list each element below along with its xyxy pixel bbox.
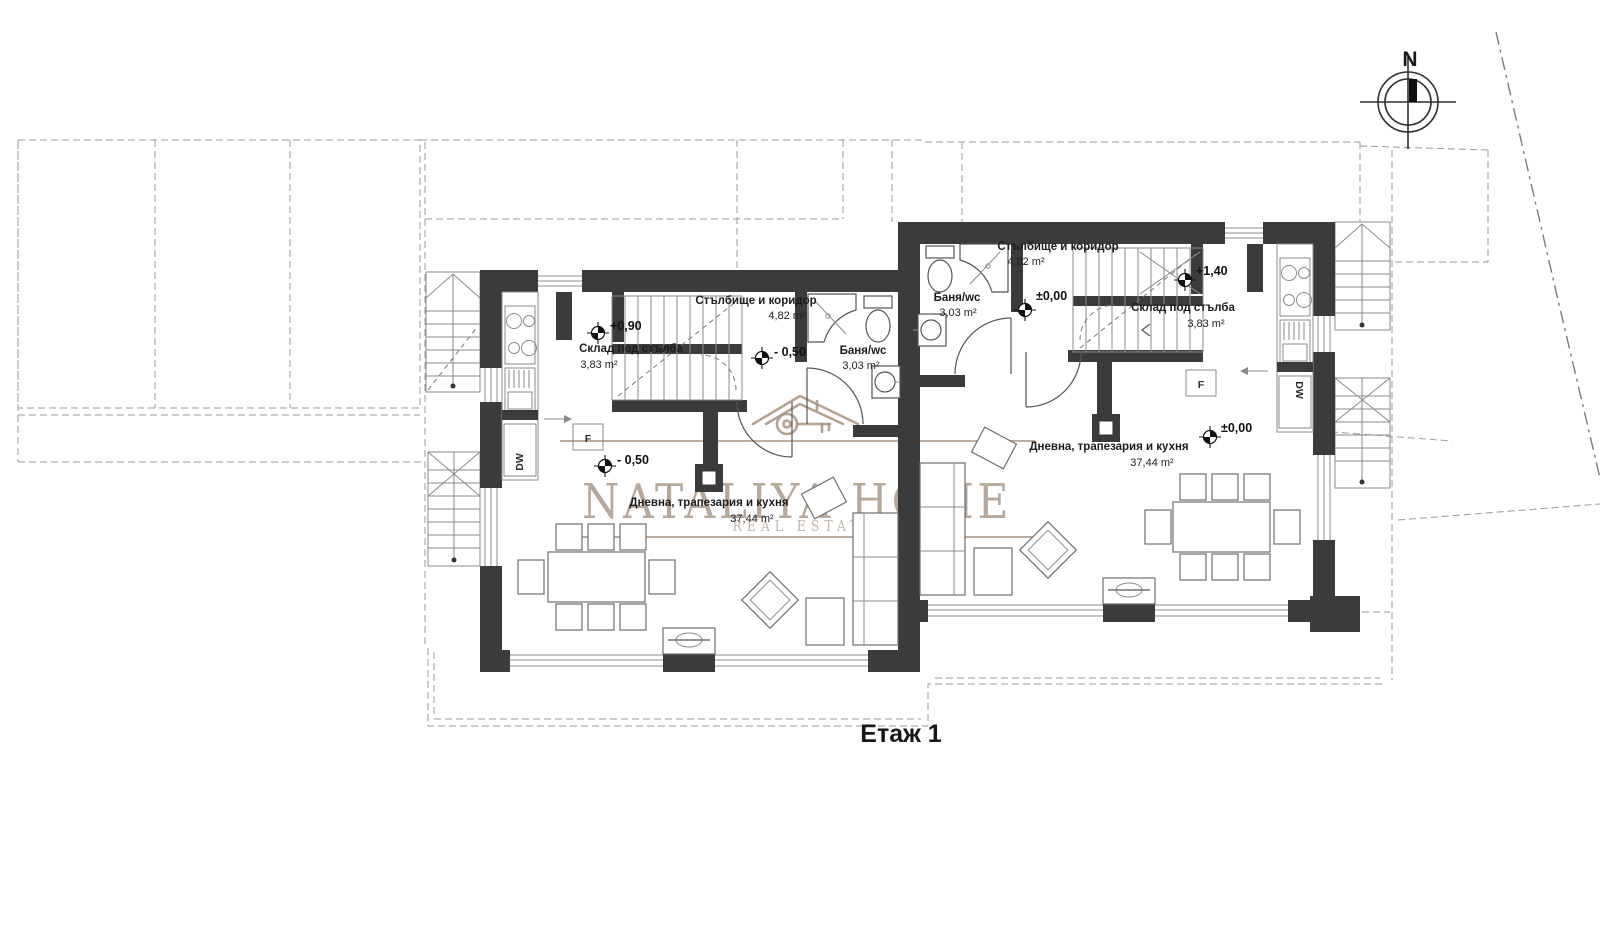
dining-chair xyxy=(556,524,582,550)
kitchen-left-unit: DW F xyxy=(502,292,603,480)
dishwasher-label: DW xyxy=(1293,381,1305,399)
room-area-bathroom-right: 3,03 m² xyxy=(939,307,977,319)
dining-chair xyxy=(518,560,544,594)
benchmark-icon xyxy=(587,322,609,344)
entrance-window-left xyxy=(538,276,582,286)
level-living-left: - 0,50 xyxy=(617,453,649,467)
compass-needle xyxy=(1409,79,1417,102)
room-area-corridor-right: 4,82 m² xyxy=(1007,256,1045,268)
window-right-wall-small xyxy=(1318,316,1330,352)
dining-chair xyxy=(620,524,646,550)
external-stair-left-lower xyxy=(428,452,480,566)
chaise xyxy=(806,598,844,645)
sink-icon xyxy=(1280,320,1310,364)
dining-chair xyxy=(1212,554,1238,580)
dining-chair xyxy=(649,560,675,594)
section-mark xyxy=(1142,324,1150,336)
dining-chair xyxy=(1145,510,1171,544)
dining-chair xyxy=(588,524,614,550)
room-area-corridor-left: 4,82 m² xyxy=(768,310,806,322)
floor-title: Етаж 1 xyxy=(860,720,941,748)
sofa xyxy=(853,513,898,645)
dining-chair xyxy=(1180,554,1206,580)
property-line xyxy=(1496,32,1600,478)
fridge-label: F xyxy=(585,433,592,445)
dining-table xyxy=(1173,502,1270,552)
chaise xyxy=(974,548,1012,595)
dishwasher-label: DW xyxy=(514,453,526,471)
level-entry-left: +0,90 xyxy=(610,319,642,333)
dining-chair xyxy=(1180,474,1206,500)
room-label-bathroom-right: Баня/wc xyxy=(934,292,981,304)
external-stair-left-upper xyxy=(426,272,480,392)
room-label-living-right: Дневна, трапезария и кухня xyxy=(1029,441,1188,453)
dining-chair xyxy=(620,604,646,630)
room-area-living-left: 37,44 m² xyxy=(730,513,774,525)
level-entry-right: +1,40 xyxy=(1196,264,1228,278)
room-area-storage-right: 3,83 m² xyxy=(1187,318,1225,330)
sink-icon xyxy=(505,368,535,412)
dining-chair xyxy=(1244,474,1270,500)
room-label-storage-right: Склад под стълба xyxy=(1131,302,1235,314)
room-label-bathroom-left: Баня/wc xyxy=(840,345,887,357)
dining-chair xyxy=(588,604,614,630)
tv-stand xyxy=(1103,578,1155,604)
dining-chair xyxy=(1274,510,1300,544)
tv-stand xyxy=(663,628,715,654)
room-label-corridor-left: Стълбище и коридор xyxy=(695,295,816,307)
fridge-label: F xyxy=(1198,379,1205,391)
room-area-living-right: 37,44 m² xyxy=(1130,457,1174,469)
armchair xyxy=(972,427,1017,469)
entrance-window-right xyxy=(1225,228,1263,238)
room-label-corridor-right: Стълбище и коридор xyxy=(997,241,1118,253)
floor-plan-svg: NATALIYA HOME REAL ESTATE N xyxy=(0,0,1600,933)
brand-logo-house-key-icon xyxy=(753,396,858,434)
room-area-storage-left: 3,83 m² xyxy=(580,359,618,371)
window-left-wall-small xyxy=(485,368,497,402)
benchmark-icon xyxy=(751,347,773,369)
sofa xyxy=(920,463,965,595)
room-label-storage-left: Склад под стълба xyxy=(579,343,683,355)
window-right-wall-large xyxy=(1318,455,1330,540)
dining-chair xyxy=(556,604,582,630)
north-compass: N xyxy=(1360,48,1456,149)
external-stair-right-upper xyxy=(1335,222,1390,330)
level-corridor-left: - 0,50 xyxy=(774,345,806,359)
dining-table xyxy=(548,552,645,602)
room-label-living-left: Дневна, трапезария и кухня xyxy=(629,497,788,509)
floor-plan-page: NATALIYA HOME REAL ESTATE N xyxy=(0,0,1600,933)
benchmark-icon xyxy=(1199,426,1221,448)
level-living-right: ±0,00 xyxy=(1221,421,1252,435)
window-left-wall-large xyxy=(485,488,497,566)
dining-chair xyxy=(1212,474,1238,500)
compass-north-label: N xyxy=(1402,48,1417,71)
toilet-icon xyxy=(926,246,954,292)
site-parcel-rect xyxy=(18,140,420,408)
level-corridor-right: ±0,00 xyxy=(1036,289,1067,303)
dining-chair xyxy=(1244,554,1270,580)
toilet-icon xyxy=(864,296,892,342)
corner-post xyxy=(1310,596,1360,632)
room-area-bathroom-left: 3,03 m² xyxy=(842,360,880,372)
